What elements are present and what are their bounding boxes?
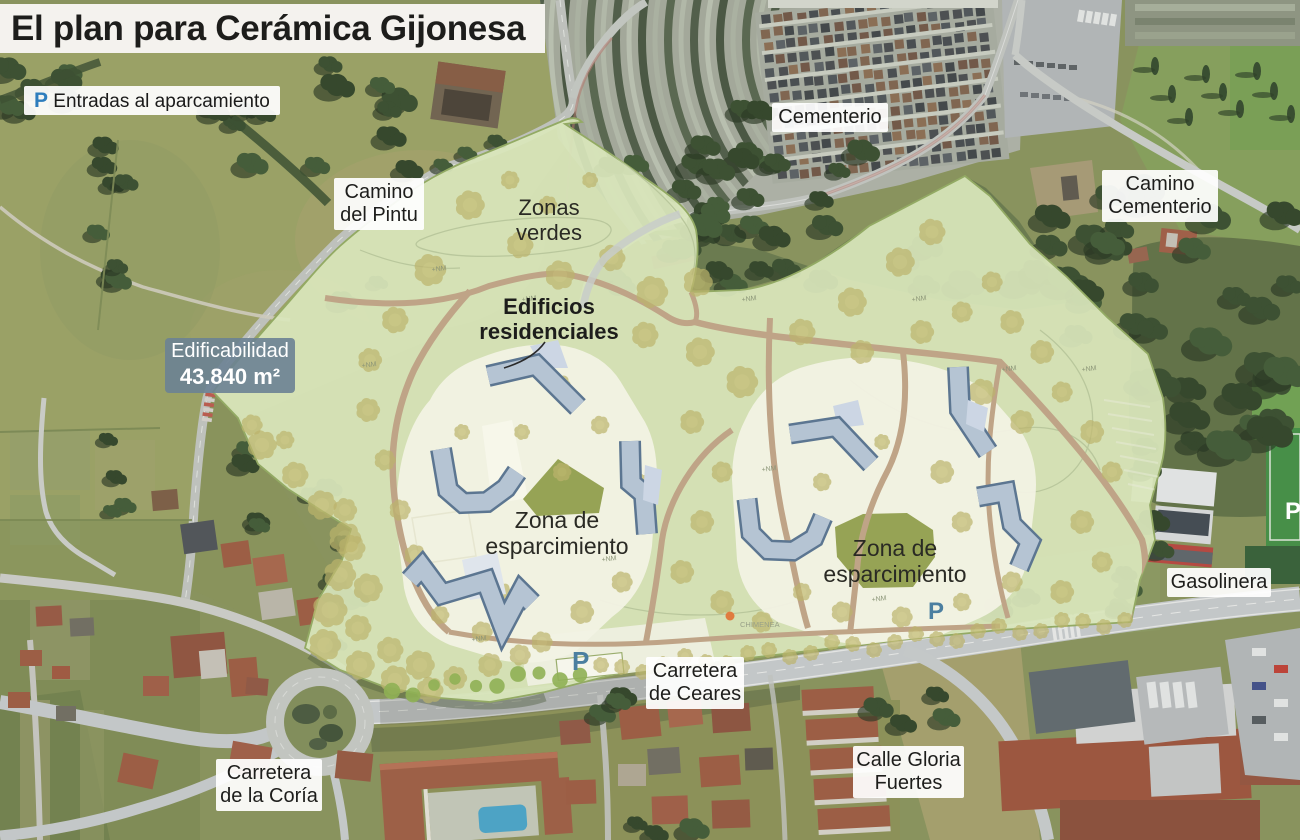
svg-text:CHIMENEA: CHIMENEA xyxy=(740,620,780,629)
